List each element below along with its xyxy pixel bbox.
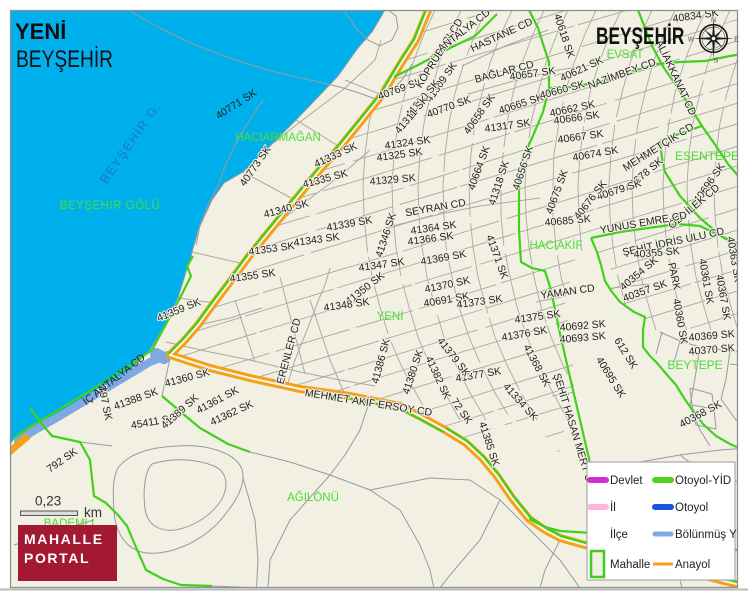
svg-text:BEYTEPE: BEYTEPE: [667, 358, 722, 372]
svg-text:BEYŞEHİR GÖLÜ: BEYŞEHİR GÖLÜ: [60, 199, 160, 212]
svg-text:HACIARMAĞAN: HACIARMAĞAN: [235, 131, 321, 144]
svg-text:EVSAT: EVSAT: [607, 49, 644, 61]
svg-text:Mahalle: Mahalle: [610, 559, 650, 571]
svg-text:E: E: [734, 37, 739, 44]
svg-text:Devlet: Devlet: [610, 475, 643, 487]
svg-text:İl: İl: [610, 501, 616, 514]
svg-text:Bölünmüş Y: Bölünmüş Y: [675, 529, 737, 541]
svg-text:İlçe: İlçe: [610, 528, 628, 541]
svg-text:N: N: [711, 17, 716, 24]
svg-text:MAHALLE: MAHALLE: [24, 531, 104, 547]
svg-text:PORTAL: PORTAL: [24, 550, 90, 566]
svg-text:Otoyol: Otoyol: [675, 502, 708, 514]
svg-text:W: W: [688, 37, 695, 44]
svg-text:AĞILÖNÜ: AĞILÖNÜ: [287, 491, 339, 504]
svg-text:Otoyol-YİD: Otoyol-YİD: [675, 474, 731, 487]
svg-text:BEYŞEHİR: BEYŞEHİR: [16, 45, 113, 73]
svg-text:YENİ: YENİ: [15, 19, 66, 44]
svg-text:YENİ: YENİ: [377, 310, 404, 323]
svg-text:Anayol: Anayol: [675, 559, 710, 571]
svg-text:S: S: [714, 58, 719, 65]
svg-text:ESENTEPE: ESENTEPE: [675, 149, 739, 163]
svg-text:BEYŞEHİR: BEYŞEHİR: [596, 23, 684, 49]
svg-text:HACIAKİF: HACIAKİF: [529, 239, 582, 252]
svg-text:km: km: [84, 505, 102, 520]
svg-text:0,23: 0,23: [35, 494, 61, 509]
